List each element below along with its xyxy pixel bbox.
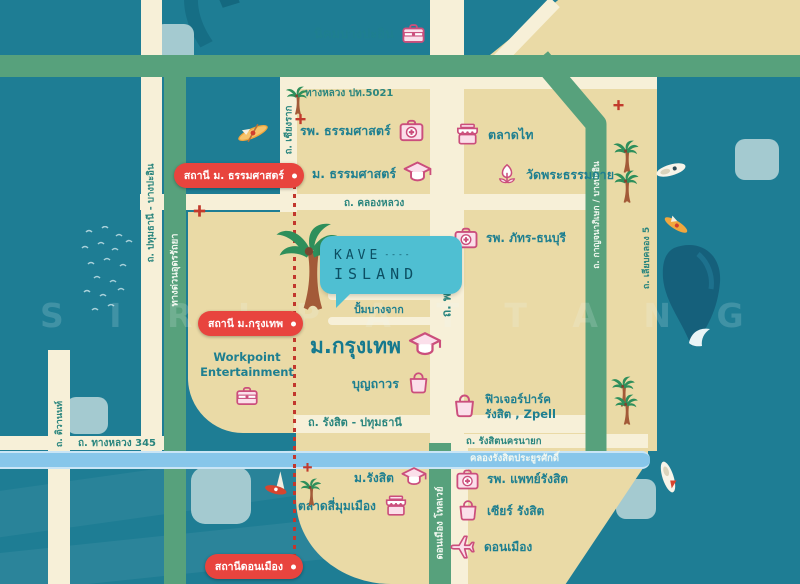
kayak-icon bbox=[656, 208, 696, 242]
place-nikhom-bang-pa-in: นิคมบางปะอิน bbox=[314, 20, 427, 47]
compass-icon bbox=[611, 99, 626, 114]
station-badge-thammasat: สถานี ม. ธรรมศาสตร์ bbox=[174, 163, 304, 188]
green-road-horizontal bbox=[0, 55, 800, 77]
road-label-rangsit-pathum: ถ. รังสิต - ปทุมธานี bbox=[308, 413, 402, 431]
place-boonthavorn: บุญถาวร bbox=[352, 370, 432, 397]
compass-icon bbox=[301, 462, 314, 475]
palm-tree-icon bbox=[613, 140, 639, 173]
palm-tree-icon bbox=[613, 394, 639, 425]
station-badge-don-mueang: สถานีดอนเมือง bbox=[205, 554, 303, 579]
island-block bbox=[191, 467, 251, 524]
place-rangsit-university: ม.รังสิต bbox=[354, 464, 428, 492]
place-rangsit-medical-hospital: รพ. แพทย์รังสิต bbox=[454, 466, 568, 493]
road-label-highway-5021: ทางหลวง ปท.5021 bbox=[305, 86, 393, 101]
island-block bbox=[735, 139, 779, 180]
medkit-icon bbox=[397, 116, 426, 145]
island-block bbox=[66, 397, 108, 434]
place-bangchak-gas-station: ปั้มบางจาก bbox=[354, 301, 404, 318]
market-icon bbox=[382, 492, 410, 520]
station-dot bbox=[291, 564, 296, 569]
road-label-udon-ratthaya: ทางด่วนอุดรรัถยา bbox=[168, 234, 183, 307]
briefcase-icon bbox=[234, 383, 260, 409]
logo-island: ISLAND bbox=[334, 265, 462, 283]
lotus-icon bbox=[494, 162, 520, 188]
place-talad-thai: ตลาดไท bbox=[453, 120, 533, 149]
palm-tree-icon bbox=[613, 170, 639, 203]
shopping-bag-icon bbox=[450, 392, 479, 421]
station-badge-bangkok-u: สถานี ม.กรุงเทพ bbox=[198, 311, 303, 336]
shopping-bag-icon bbox=[405, 370, 432, 397]
place-don-mueang-airport: ดอนเมือง bbox=[448, 532, 532, 562]
kayak-icon bbox=[230, 114, 276, 152]
road-label-liab-khlong-5: ถ. เลียบคลอง 5 bbox=[639, 227, 653, 289]
compass-icon bbox=[293, 113, 308, 128]
station-dot bbox=[292, 173, 297, 178]
sailboat-icon bbox=[650, 155, 692, 185]
logo-dashes: ---- bbox=[384, 250, 411, 259]
briefcase-icon bbox=[400, 20, 427, 47]
location-map: S I R I P A T T A N G ทางหลวง ปท.5021 ถ.… bbox=[0, 0, 800, 584]
place-thammasat-university: ม. ธรรมศาสตร์ bbox=[312, 158, 433, 189]
place-pat-thonburi-hospital: รพ. ภัทร-ธนบุรี bbox=[452, 224, 566, 252]
graduation-cap-icon bbox=[402, 158, 433, 189]
station-dot bbox=[291, 321, 296, 326]
sail-kayak-icon bbox=[258, 466, 296, 504]
road-label-tiwanon: ถ. ติวานนท์ bbox=[52, 401, 66, 447]
medkit-icon bbox=[454, 466, 481, 493]
airplane-icon bbox=[448, 532, 478, 562]
graduation-cap-icon bbox=[400, 464, 428, 492]
kave-island-logo: KAVE---- ISLAND bbox=[320, 236, 462, 294]
road-label-highway-345: ถ. ทางหลวง 345 bbox=[78, 436, 156, 451]
place-workpoint: Workpoint Entertainment bbox=[198, 350, 296, 409]
sailboat-icon bbox=[646, 452, 690, 502]
road-label-pathum-bang-pa-in: ถ. ปทุมธานี - บางปะอิน bbox=[144, 164, 159, 263]
shopping-bag-icon bbox=[455, 498, 481, 524]
road-label-rangsit-nakhon-nayok: ถ. รังสิตนครนายก bbox=[466, 434, 541, 449]
graduation-cap-icon bbox=[407, 328, 443, 364]
place-wat-phra-dhammakaya: วัดพระธรรมกาย bbox=[494, 162, 614, 188]
place-thammasat-hospital: รพ. ธรรมศาสตร์ bbox=[300, 116, 426, 145]
place-future-park: ฟิวเจอร์ปาร์ค รังสิต , Zpell bbox=[450, 392, 571, 422]
canal-label: คลองรังสิตประยูรศักดิ์ bbox=[470, 451, 559, 466]
road-label-khlong-luang: ถ. คลองหลวง bbox=[344, 196, 404, 211]
place-bangkok-university: ม.กรุงเทพ bbox=[310, 328, 443, 364]
compass-icon bbox=[191, 204, 208, 221]
road-label-tollway: ดอนเมือง โทลเวย์ bbox=[433, 487, 448, 560]
market-icon bbox=[453, 120, 482, 149]
place-zeer-rangsit: เซียร์ รังสิต bbox=[455, 498, 544, 524]
logo-name: KAVE bbox=[334, 248, 381, 263]
palm-tree-icon bbox=[299, 478, 322, 506]
palm-tree-icon bbox=[286, 86, 308, 115]
